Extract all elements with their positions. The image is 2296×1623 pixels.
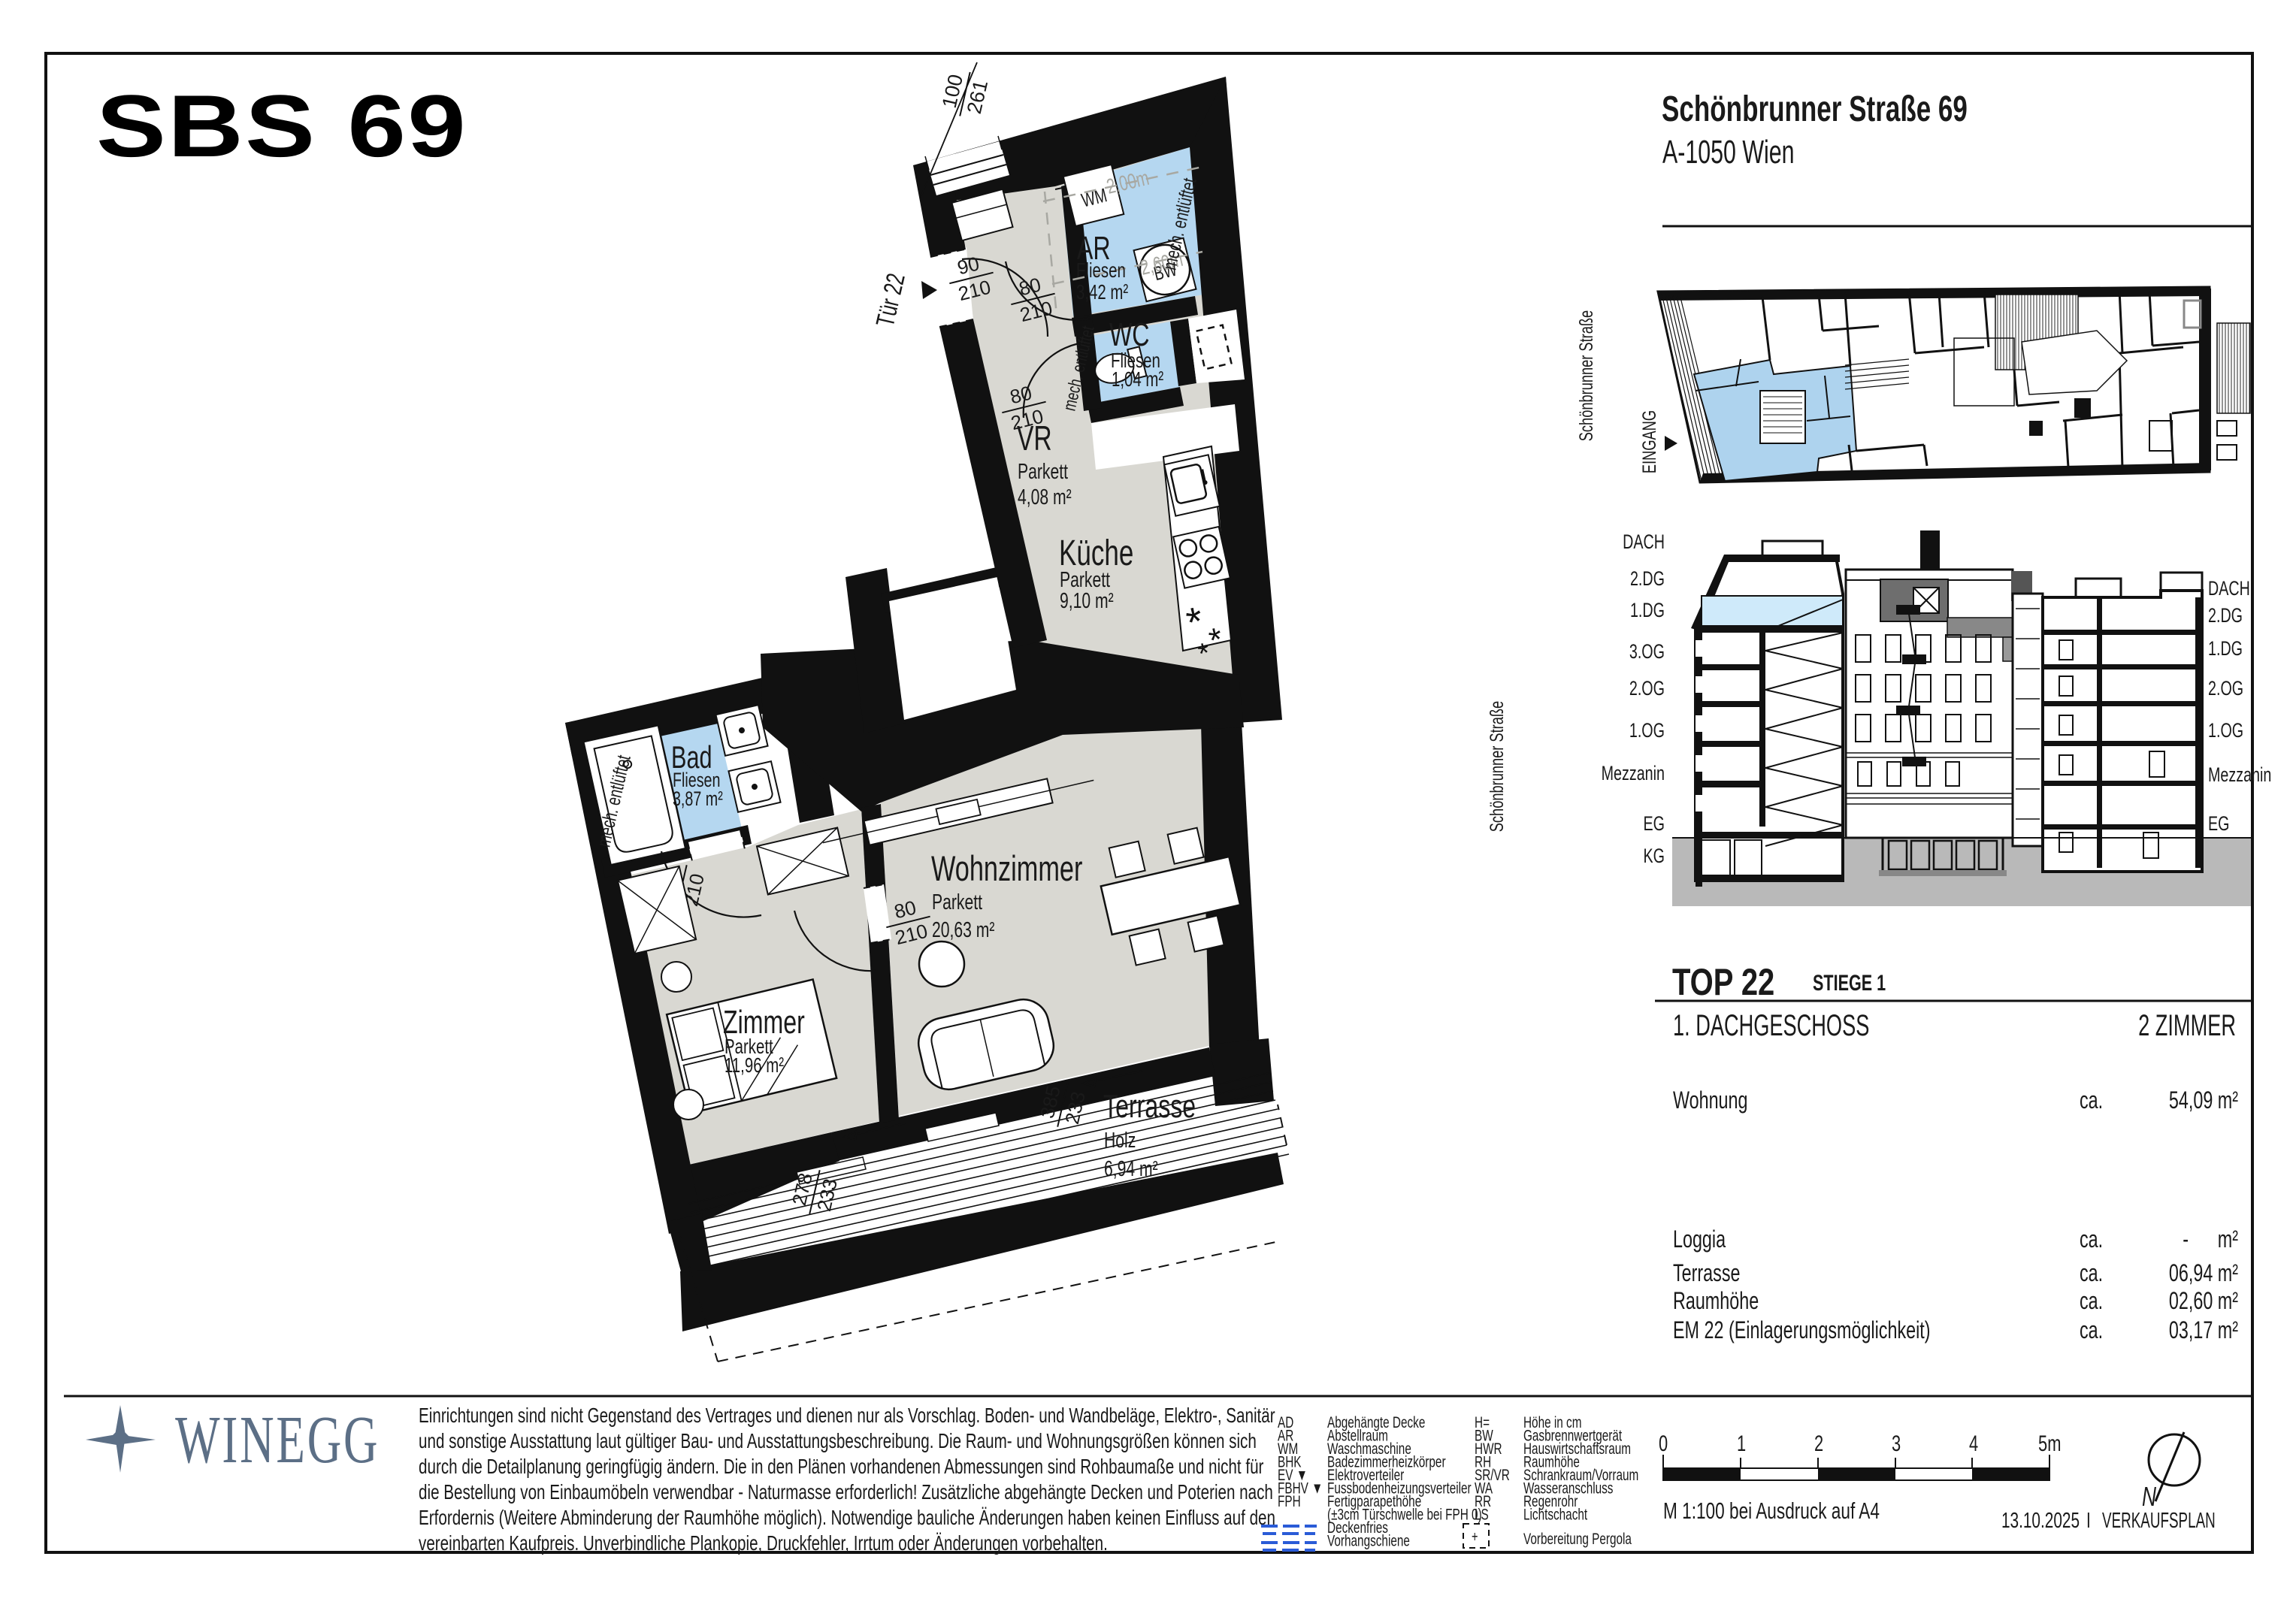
svg-text:VR: VR — [1017, 419, 1052, 458]
svg-text:9,10 m²: 9,10 m² — [1060, 589, 1114, 613]
svg-text:TOP 22: TOP 22 — [1672, 961, 1774, 1003]
svg-text:Wohnzimmer: Wohnzimmer — [931, 849, 1083, 889]
svg-text:DACH: DACH — [2208, 578, 2250, 600]
svg-text:3.OG: 3.OG — [1629, 641, 1665, 663]
svg-text:Schönbrunner Straße: Schönbrunner Straße — [1486, 701, 1508, 832]
svg-text:3: 3 — [1892, 1431, 1901, 1456]
svg-text:2 ZIMMER: 2 ZIMMER — [2138, 1009, 2236, 1042]
svg-text:2.DG: 2.DG — [2208, 605, 2243, 627]
svg-text:ca.: ca. — [2080, 1087, 2103, 1113]
svg-text:A-1050 Wien: A-1050 Wien — [1662, 134, 1794, 171]
svg-text:SBS 69: SBS 69 — [96, 77, 467, 175]
svg-text:1,04 m²: 1,04 m² — [1112, 368, 1163, 391]
svg-text:Vorbereitung Pergola: Vorbereitung Pergola — [1523, 1530, 1632, 1548]
svg-text:EG: EG — [1643, 813, 1664, 836]
svg-text:EG: EG — [2208, 813, 2229, 836]
svg-text:Schönbrunner Straße: Schönbrunner Straße — [1575, 310, 1597, 441]
svg-text:FPH: FPH — [1278, 1492, 1301, 1510]
svg-text:4,08 m²: 4,08 m² — [1018, 485, 1072, 509]
svg-text:2.OG: 2.OG — [2208, 678, 2243, 700]
svg-text:11,96 m²: 11,96 m² — [724, 1054, 784, 1077]
svg-text:LS: LS — [1475, 1505, 1489, 1523]
svg-text:Loggia: Loggia — [1673, 1226, 1726, 1252]
svg-text:Küche: Küche — [1059, 533, 1133, 573]
svg-text:1.DG: 1.DG — [1630, 600, 1665, 622]
svg-text:Parkett: Parkett — [1018, 460, 1068, 484]
svg-text:4: 4 — [1969, 1431, 1978, 1456]
svg-text:Terrasse: Terrasse — [1673, 1259, 1741, 1286]
svg-text:ca.: ca. — [2080, 1316, 2103, 1343]
svg-text:Parkett: Parkett — [932, 890, 982, 914]
svg-text:Fliesen: Fliesen — [1076, 259, 1126, 283]
svg-text:Einrichtungen sind nicht Gegen: Einrichtungen sind nicht Gegenstand des … — [419, 1404, 1275, 1428]
svg-text:und sonstige Ausstattung laut: und sonstige Ausstattung laut gültiger B… — [419, 1430, 1257, 1453]
svg-text:3,42 m²: 3,42 m² — [1076, 281, 1128, 304]
svg-text:ca.: ca. — [2080, 1259, 2103, 1286]
svg-text:M 1:100 bei Ausdruck auf A4: M 1:100 bei Ausdruck auf A4 — [1663, 1497, 1880, 1523]
svg-text:Wohnung: Wohnung — [1673, 1087, 1748, 1113]
svg-text:EINGANG: EINGANG — [1638, 410, 1660, 473]
svg-text:3,87 m²: 3,87 m² — [673, 788, 723, 811]
svg-text:20,63 m²: 20,63 m² — [932, 918, 995, 942]
svg-text:KG: KG — [1643, 845, 1664, 868]
svg-text:2.OG: 2.OG — [1629, 678, 1665, 700]
svg-text:WC: WC — [1109, 316, 1150, 353]
svg-text:Holz: Holz — [1104, 1129, 1136, 1153]
svg-text:1.OG: 1.OG — [2208, 720, 2243, 742]
svg-text:Raumhöhe: Raumhöhe — [1673, 1287, 1759, 1313]
svg-text:1.DG: 1.DG — [2208, 638, 2243, 660]
svg-text:die Bestellung von Einbaumöbel: die Bestellung von Einbaumöbeln verwendb… — [419, 1481, 1273, 1504]
svg-text:+: + — [1472, 1528, 1478, 1546]
svg-text:5m: 5m — [2038, 1431, 2061, 1456]
svg-text:Mezzanin: Mezzanin — [1602, 763, 1665, 785]
svg-text:ca.: ca. — [2080, 1287, 2103, 1313]
svg-text:02,60 m²: 02,60 m² — [2169, 1287, 2238, 1313]
svg-text:Lichtschacht: Lichtschacht — [1523, 1505, 1587, 1523]
svg-text:WINEGG: WINEGG — [175, 1402, 380, 1477]
svg-text:1. DACHGESCHOSS: 1. DACHGESCHOSS — [1673, 1009, 1869, 1042]
svg-text:Erfordernis (Weitere Abminderu: Erfordernis (Weitere Abminderung der Rau… — [419, 1507, 1275, 1530]
svg-text:EM 22 (Einlagerungsmöglichkeit: EM 22 (Einlagerungsmöglichkeit) — [1673, 1316, 1931, 1343]
svg-text:Schönbrunner Straße 69: Schönbrunner Straße 69 — [1662, 89, 1968, 129]
svg-text:2.DG: 2.DG — [1630, 568, 1665, 591]
svg-text:N: N — [2142, 1481, 2156, 1512]
svg-text:Terrasse: Terrasse — [1103, 1088, 1196, 1125]
svg-text:54,09 m²: 54,09 m² — [2169, 1087, 2238, 1113]
svg-text:06,94 m²: 06,94 m² — [2169, 1259, 2238, 1286]
svg-text:0: 0 — [1659, 1431, 1668, 1456]
svg-text:vereinbarten Kaufpreis. Unverb: vereinbarten Kaufpreis. Unverbindliche P… — [419, 1532, 1108, 1555]
svg-text:m²: m² — [2218, 1226, 2238, 1252]
svg-text:I: I — [2086, 1509, 2091, 1533]
svg-text:ca.: ca. — [2080, 1226, 2103, 1252]
svg-text:13.10.2025: 13.10.2025 — [2001, 1509, 2080, 1533]
svg-text:2: 2 — [1814, 1431, 1823, 1456]
svg-text:VERKAUFSPLAN: VERKAUFSPLAN — [2102, 1509, 2216, 1533]
svg-text:durch die Detailplanung gering: durch die Detailplanung geringfügig ände… — [419, 1455, 1263, 1479]
svg-text:-: - — [2183, 1226, 2189, 1252]
svg-text:1: 1 — [1737, 1431, 1746, 1456]
svg-text:Vorhangschiene: Vorhangschiene — [1327, 1531, 1410, 1549]
svg-text:1.OG: 1.OG — [1629, 720, 1665, 742]
svg-text:Mezzanin: Mezzanin — [2208, 764, 2271, 787]
svg-text:STIEGE 1: STIEGE 1 — [1813, 969, 1886, 995]
svg-text:DACH: DACH — [1623, 531, 1665, 554]
svg-text:6,94 m²: 6,94 m² — [1104, 1157, 1158, 1181]
svg-text:03,17 m²: 03,17 m² — [2169, 1316, 2238, 1343]
